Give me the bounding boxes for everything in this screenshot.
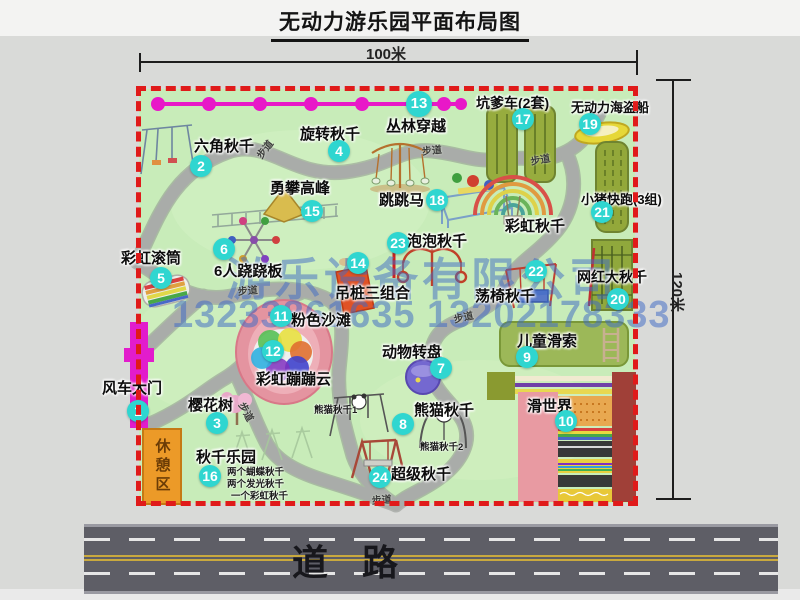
road: 道路 [84,524,778,594]
animal-turntable-icon [406,360,440,394]
rest-area-label: 休憩区 [152,438,173,495]
dimension-width-label: 100米 [366,43,406,64]
screenshot-root: 无动力游乐园平面布局图 100米 120米 游乐设备有限公司 132338616… [0,0,800,600]
dimension-height-label: 120米 [667,272,688,312]
rest-area-box: 休憩区 [142,428,182,505]
pink-beach-icon [236,300,332,404]
big-swing-icon [589,240,632,310]
road-label: 道路 [292,534,432,586]
piggy-run-icon [596,142,628,232]
page-title: 无动力游乐园平面布局图 [271,6,529,42]
